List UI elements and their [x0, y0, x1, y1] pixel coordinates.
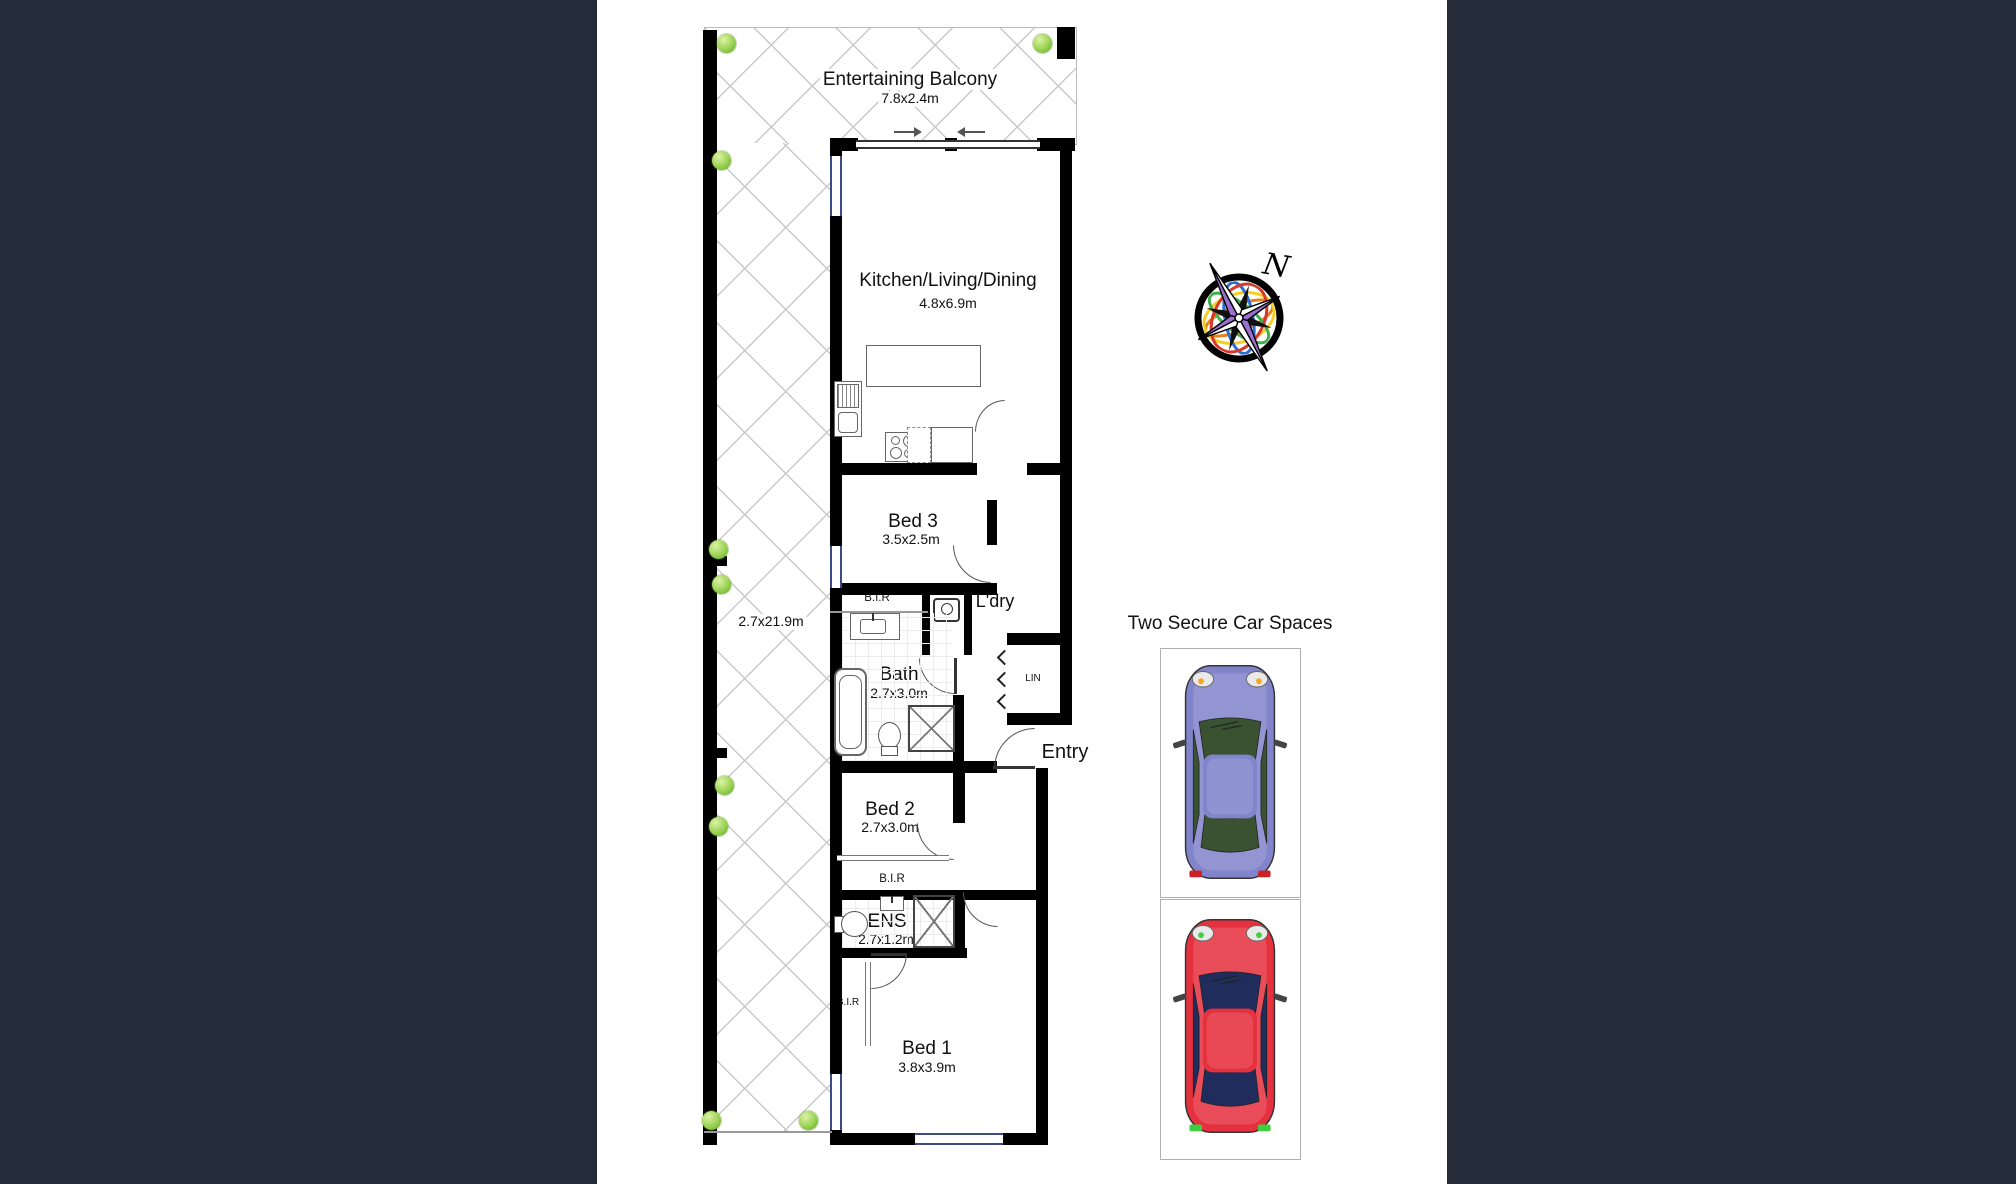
- bed1-label: Bed 1: [899, 1038, 955, 1059]
- sink-bowl: [838, 412, 858, 433]
- wall-kitchen-bed3-b: [1027, 463, 1072, 475]
- shrub-icon: [712, 575, 731, 594]
- terrace-area: [704, 143, 833, 1133]
- window-living-left: [830, 156, 842, 216]
- window-bed1-bottom: [915, 1133, 1003, 1145]
- shrub-icon: [1033, 34, 1052, 53]
- bed2-label: Bed 2: [862, 799, 918, 820]
- bed2-dims: 2.7x3.0m: [858, 820, 922, 836]
- bath-basin: [860, 619, 886, 634]
- window-bed1-left: [830, 1074, 842, 1130]
- wall-dwelling-right-upper: [1060, 138, 1072, 645]
- cooktop-burner: [891, 436, 900, 445]
- car-spaces-title: Two Secure Car Spaces: [1125, 613, 1336, 634]
- bath-door-leaf: [954, 658, 957, 694]
- bed2-robe-doors: [837, 855, 949, 861]
- linen-bifold-icon: [997, 694, 1013, 710]
- balcony-label: Entertaining Balcony: [820, 69, 1000, 90]
- kitchen-nook-door-arc: [975, 400, 1005, 432]
- kitchen-bench: [866, 345, 981, 387]
- wall-hall-bed-top: [995, 890, 1036, 900]
- bed3-dims: 3.5x2.5m: [879, 532, 943, 548]
- car-top-view-red: [1172, 912, 1288, 1140]
- entry-label: Entry: [1039, 741, 1092, 763]
- bed3-label: Bed 3: [885, 511, 941, 532]
- bed3-door-arc: [953, 545, 991, 583]
- wall-bed3-bottom: [830, 583, 997, 595]
- shrub-icon: [709, 817, 728, 836]
- floorplan-sheet: Entertaining Balcony 7.8x2.4m 2.7x21.9m …: [597, 0, 1447, 1184]
- bathtub-inner: [839, 675, 862, 749]
- compass-north-label: N: [1259, 246, 1294, 286]
- bath-toilet-cistern: [881, 746, 898, 756]
- sink-drainer: [837, 384, 859, 408]
- wall-hall-stub: [1007, 633, 1060, 645]
- balcony-sliding-door: [856, 140, 1040, 149]
- terrace-dims: 2.7x21.9m: [735, 614, 806, 630]
- shrub-icon: [799, 1111, 818, 1130]
- linen-bifold-icon: [997, 672, 1013, 688]
- bath-toilet-bowl: [878, 722, 901, 749]
- entry-door-leaf: [993, 766, 1035, 769]
- wall-left-pier-2: [703, 748, 727, 758]
- wall-bed2-east-stub: [953, 773, 965, 823]
- wall-dwelling-left: [830, 138, 842, 1145]
- slide-left-arrow-icon: [959, 131, 985, 133]
- shrub-icon: [709, 540, 728, 559]
- bath-shower: [908, 705, 955, 752]
- bed2-hall-door-arc: [963, 892, 998, 927]
- window-mid-left: [830, 546, 842, 588]
- bath-basin-tap: [872, 613, 874, 621]
- bed1-dims: 3.8x3.9m: [895, 1060, 959, 1076]
- fridge: [931, 427, 973, 463]
- entry-door-arc: [994, 728, 1035, 769]
- ens-toilet-bowl: [841, 911, 868, 937]
- ens-basin-tap: [891, 896, 893, 903]
- shrub-icon: [702, 1111, 721, 1130]
- wall-linen-bottom: [1007, 713, 1072, 725]
- wall-bath-bottom: [830, 761, 997, 773]
- wall-dwelling-right-lower: [1036, 768, 1048, 1145]
- slide-right-arrow-icon: [894, 131, 920, 133]
- wall-bed3-east-stub: [987, 500, 997, 545]
- linen-label: LIN: [1022, 673, 1044, 684]
- cooktop-burner: [890, 447, 902, 459]
- compass-rose: N: [1167, 232, 1317, 392]
- balcony-dims: 7.8x2.4m: [878, 91, 942, 107]
- car-top-view-purple: [1172, 658, 1288, 886]
- wall-balcony-tr-corner: [1057, 27, 1075, 59]
- terrace-bottom-line: [704, 1131, 832, 1133]
- living-dims: 4.8x6.9m: [916, 296, 980, 312]
- shrub-icon: [712, 151, 731, 170]
- bed1-robe-door: [865, 962, 871, 1046]
- pantry: [907, 427, 931, 463]
- living-label: Kitchen/Living/Dining: [856, 270, 1039, 291]
- wall-kitchen-bed3-a: [830, 463, 977, 475]
- shrub-icon: [715, 776, 734, 795]
- shrub-icon: [717, 34, 736, 53]
- ens-shower: [913, 895, 955, 948]
- bir-bed2-label: B.I.R: [876, 873, 908, 886]
- linen-bifold-icon: [997, 650, 1013, 666]
- bed1-door-arc: [871, 953, 907, 989]
- wall-laundry-right: [964, 595, 972, 655]
- bed1-door-leaf: [871, 953, 907, 956]
